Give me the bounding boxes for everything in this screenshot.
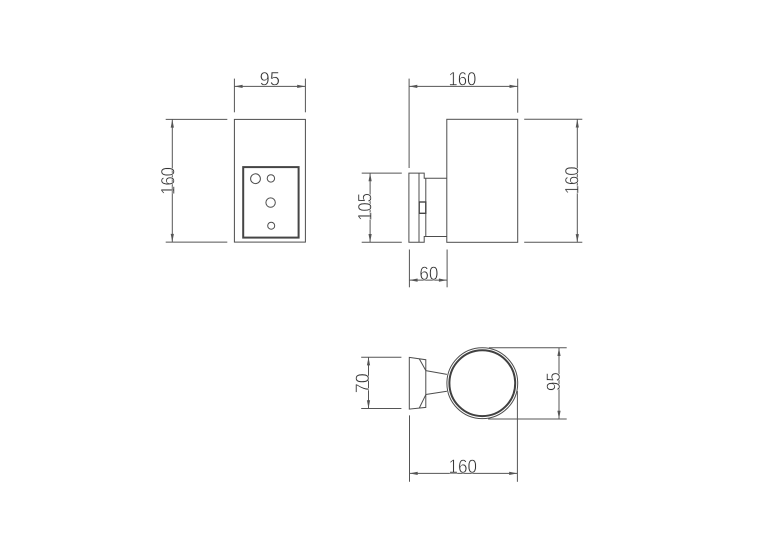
svg-text:160: 160	[448, 70, 476, 91]
svg-text:160: 160	[563, 166, 584, 194]
svg-text:160: 160	[449, 457, 478, 478]
svg-text:95: 95	[260, 70, 281, 91]
svg-text:70: 70	[353, 373, 374, 393]
svg-text:60: 60	[419, 264, 438, 285]
svg-text:105: 105	[356, 193, 377, 221]
svg-text:95: 95	[544, 372, 565, 391]
svg-text:160: 160	[158, 167, 179, 195]
